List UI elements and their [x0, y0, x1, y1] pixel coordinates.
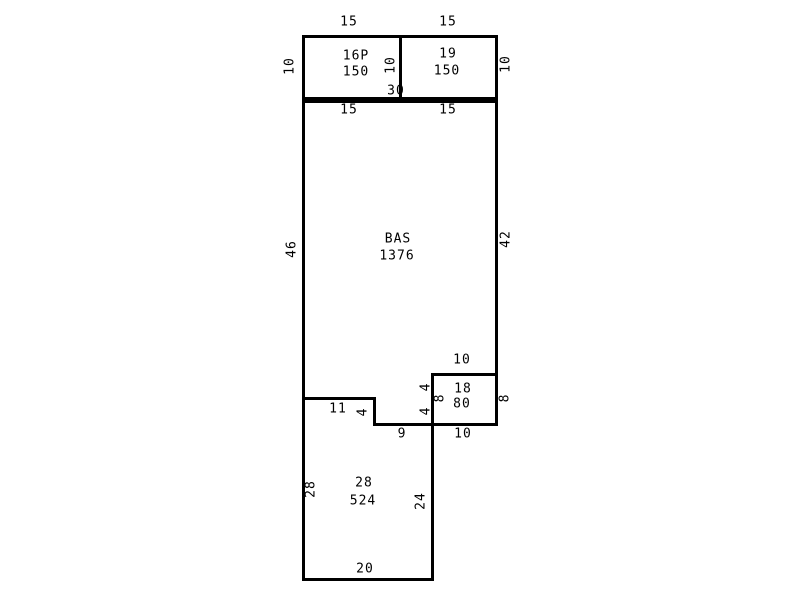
area-right-mid-value: 80	[453, 398, 471, 411]
wall-box18-top	[431, 373, 498, 376]
area-main-code: BAS	[385, 233, 411, 246]
dim-box18-left-upper: 4	[420, 383, 433, 392]
dim-upper-divider-height: 10	[385, 56, 398, 74]
dim-box18-top-width: 10	[453, 354, 471, 367]
dim-bottom-width: 20	[356, 563, 374, 576]
dim-box18-right-height: 8	[499, 394, 512, 403]
wall-bottom	[302, 578, 434, 581]
wall-bas-bottom-left	[302, 397, 376, 400]
wall-mid-vertical	[431, 373, 434, 581]
dim-step-height: 4	[357, 408, 370, 417]
dim-bas-right-height: 42	[500, 230, 513, 248]
dim-bas-top-left-width: 15	[340, 104, 358, 117]
area-upper-left-value: 150	[343, 66, 369, 79]
dim-box18-left-lower: 4	[420, 407, 433, 416]
dim-upper-right-height: 10	[500, 55, 513, 73]
dim-upper-bottom-width: 30	[387, 85, 405, 98]
area-upper-right-code: 19	[439, 48, 457, 61]
dim-step-bottom-width: 9	[398, 428, 407, 441]
wall-step-bottom	[373, 423, 498, 426]
wall-right-edge	[495, 100, 498, 426]
dim-top-right-width: 15	[439, 16, 457, 29]
wall-upper-left	[302, 35, 305, 100]
wall-left-edge	[302, 100, 305, 581]
dim-bas-top-right-width: 15	[439, 104, 457, 117]
wall-bas-top	[302, 100, 498, 103]
dim-upper-left-height: 10	[284, 57, 297, 75]
area-upper-left-code: 16P	[343, 50, 369, 63]
dim-top-left-width: 15	[340, 16, 358, 29]
area-bottom-value: 524	[350, 495, 376, 508]
dim-box18-bottom-width: 10	[454, 428, 472, 441]
dim-box18-left-height: 8	[434, 394, 447, 403]
dim-bas-left-height: 46	[286, 240, 299, 258]
area-right-mid-code: 18	[454, 383, 472, 396]
wall-step-vertical	[373, 397, 376, 426]
area-upper-right-value: 150	[434, 65, 460, 78]
area-bottom-code: 28	[355, 477, 373, 490]
area-main-value: 1376	[379, 250, 414, 263]
floor-plan-sketch: 15 15 10 10 10 30 15 15 46 42 10 4 4 8 8…	[0, 0, 800, 600]
dim-bottom-left-height: 28	[305, 480, 318, 498]
dim-bottom-right-height: 24	[415, 492, 428, 510]
dim-step-width: 11	[329, 403, 347, 416]
